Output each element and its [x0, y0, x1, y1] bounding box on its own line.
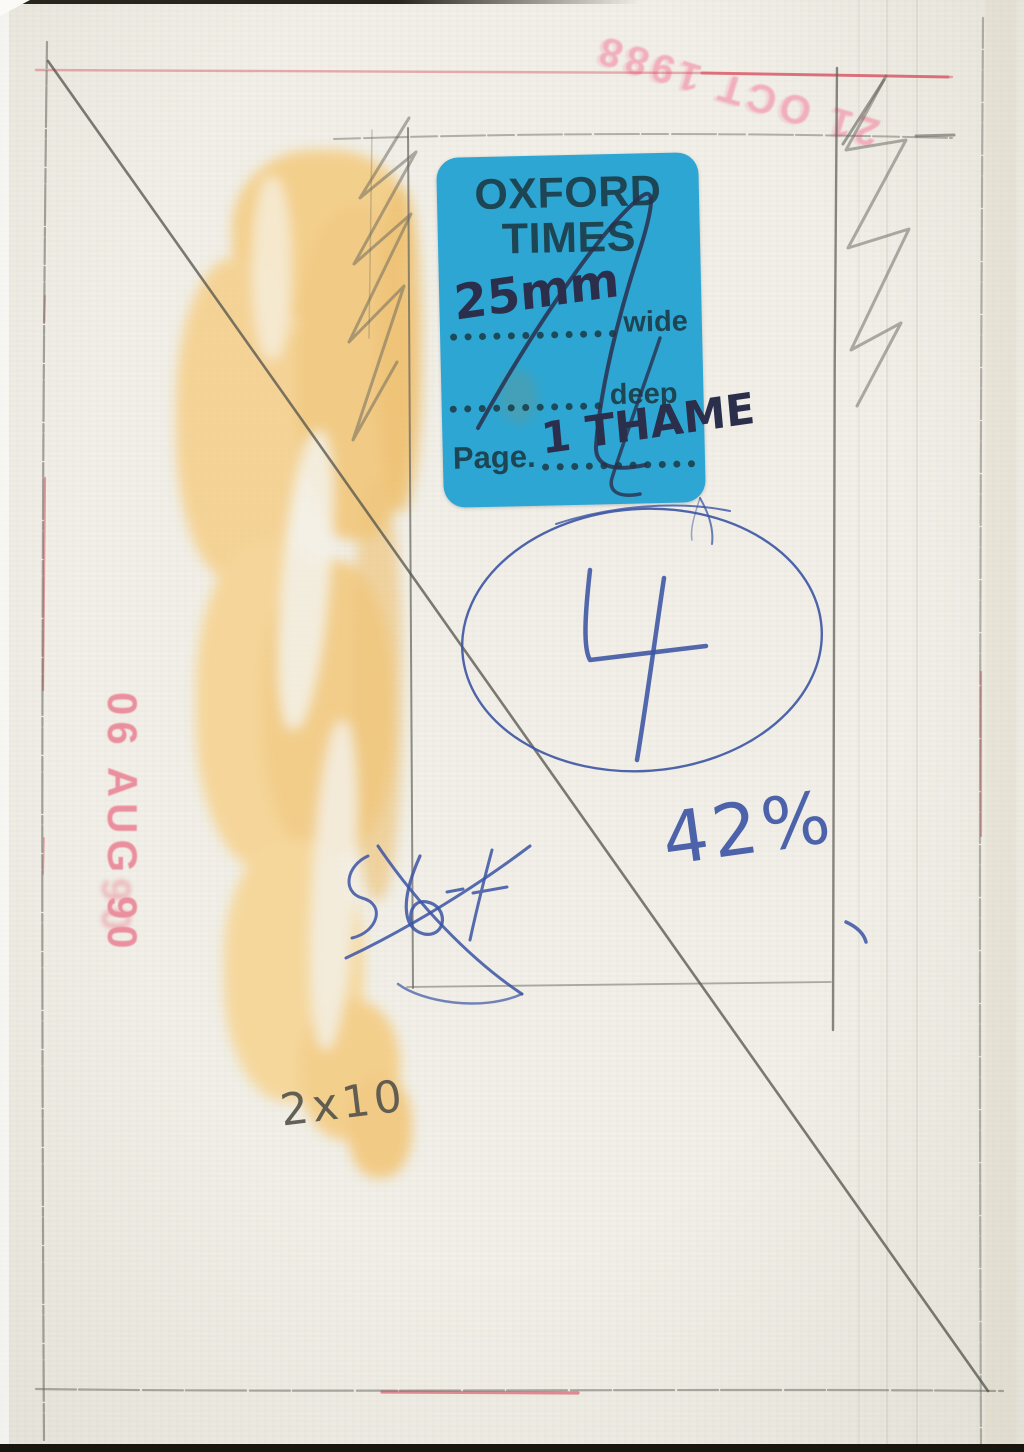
- paint-blob: [378, 188, 422, 512]
- sticker-title: OXFORD TIMES: [436, 168, 700, 264]
- scan-edge-top: [0, 0, 640, 4]
- paint-blob: [352, 480, 402, 900]
- wide-label: wide: [623, 304, 688, 339]
- scan-corner-notch: [0, 0, 30, 16]
- sticker-row-wide: wide: [450, 304, 689, 343]
- paint-light-streak: [252, 176, 292, 360]
- sticker-oxford-times: OXFORD TIMES 25mm wide deep Page. 1 THAM…: [436, 152, 706, 508]
- sticker-title-line1: OXFORD: [436, 168, 699, 219]
- sticker-title-line2: TIMES: [437, 213, 700, 264]
- dotted-leader: [450, 324, 616, 341]
- page-label: Page.: [453, 440, 536, 476]
- date-stamp-left: 06 AUG 90 90: [98, 692, 146, 942]
- date-stamp-left-smudge: 90: [92, 878, 140, 937]
- scan-edge-bottom: [0, 1444, 1024, 1452]
- photo-back-scan: 06 AUG 90 90 21 OCT 1988 OXFORD TIMES 25…: [0, 0, 1024, 1452]
